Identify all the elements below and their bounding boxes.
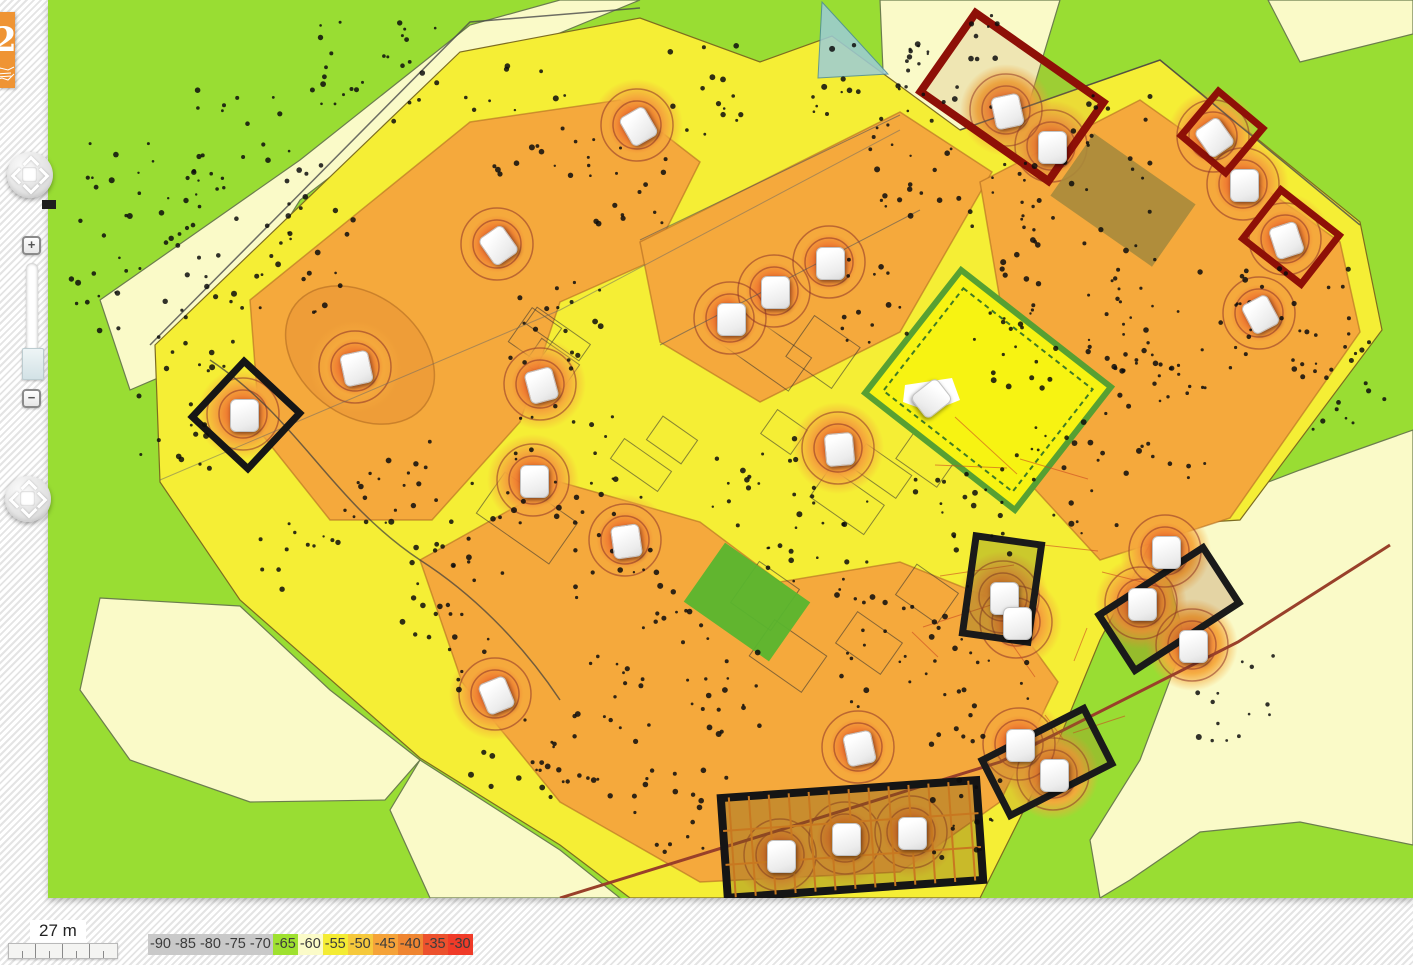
ap-marker[interactable] — [824, 432, 856, 467]
zoom-in-button[interactable]: + — [22, 236, 41, 255]
legend-cell--75: -75 — [223, 934, 248, 955]
ap-marker[interactable] — [520, 465, 549, 498]
legend-cell--40: -40 — [398, 934, 423, 955]
legend-cell--35: -35 — [423, 934, 448, 955]
ap-marker[interactable] — [1003, 607, 1032, 640]
app-logo[interactable]: 2 — [0, 12, 15, 88]
legend-cell--80: -80 — [198, 934, 223, 955]
logo-glyph: 2 — [0, 20, 15, 60]
legend-cell--55: -55 — [323, 934, 348, 955]
ap-marker[interactable] — [1128, 588, 1157, 621]
ap-marker[interactable] — [1230, 169, 1259, 202]
ap-marker[interactable] — [1040, 759, 1069, 792]
legend-cell--65: -65 — [273, 934, 298, 955]
scale-ruler — [8, 943, 118, 959]
dark-handle — [42, 200, 56, 209]
legend-cell--70: -70 — [248, 934, 273, 955]
ap-marker[interactable] — [767, 840, 796, 873]
ap-marker[interactable] — [761, 276, 790, 309]
ap-marker[interactable] — [610, 523, 643, 560]
scale-label: 27 m — [30, 920, 86, 943]
legend-cell--60: -60 — [298, 934, 323, 955]
zoom-out-button[interactable]: − — [22, 389, 41, 408]
pan-center-button[interactable] — [20, 491, 35, 506]
logo-map-icon — [0, 66, 15, 82]
legend-cell--30: -30 — [448, 934, 473, 955]
ap-marker[interactable] — [816, 247, 845, 280]
ap-marker[interactable] — [717, 303, 746, 336]
pan-control-secondary[interactable] — [5, 476, 51, 522]
ap-marker[interactable] — [898, 817, 927, 850]
app-window: { "logo": { "glyph": "2" }, "controls": … — [0, 0, 1413, 965]
legend: -90-85-80-75-70-65-60-55-50-45-40-35-30 — [148, 934, 473, 955]
legend-cell--45: -45 — [373, 934, 398, 955]
ap-marker[interactable] — [1152, 536, 1181, 569]
legend-cell--90: -90 — [148, 934, 173, 955]
ap-marker[interactable] — [1179, 630, 1208, 663]
ap-marker[interactable] — [230, 399, 259, 432]
zoom-slider-handle[interactable] — [22, 348, 44, 380]
pan-control-primary[interactable] — [7, 152, 53, 198]
pan-center-button[interactable] — [22, 167, 37, 182]
ap-marker[interactable] — [832, 823, 861, 856]
map-viewport[interactable] — [48, 0, 1413, 898]
ap-marker[interactable] — [1006, 729, 1035, 762]
ap-marker[interactable] — [1038, 131, 1067, 164]
legend-cell--85: -85 — [173, 934, 198, 955]
legend-cell--50: -50 — [348, 934, 373, 955]
